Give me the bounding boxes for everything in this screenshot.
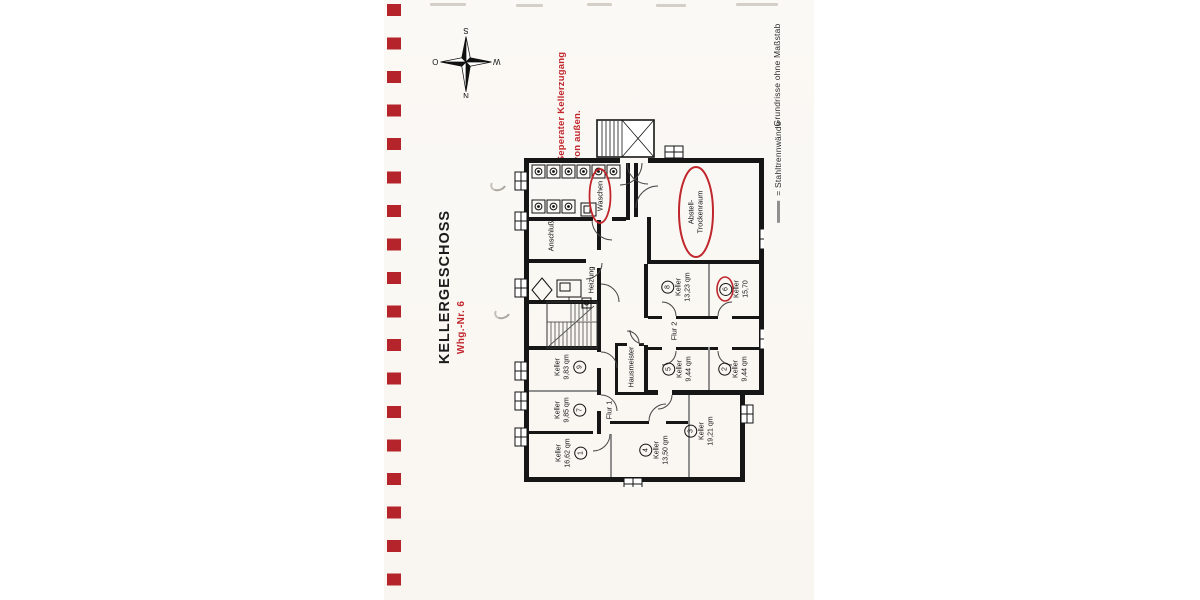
- legend-no-scale: Grundrisse ohne Maßstab: [772, 24, 782, 127]
- cellar-number-8: 8: [661, 281, 674, 294]
- compass-rose: N O S W: [430, 26, 502, 98]
- scan-smudge: [492, 303, 512, 321]
- compass-n-label: N: [463, 91, 469, 98]
- room-label-anschluss: Anschluß: [546, 221, 555, 251]
- compass-o-label: O: [432, 57, 438, 66]
- apartment-number: Whg.-Nr. 6: [456, 210, 467, 354]
- scan-artifact: [516, 4, 543, 7]
- legend-steel-walls-text: = Stahltrennwände: [773, 121, 783, 196]
- room-label-flur2: Flur 2: [669, 322, 678, 341]
- cellar-number-4: 4: [639, 444, 652, 457]
- legend-steel-walls: = Stahltrennwände: [773, 121, 783, 223]
- cellar-number-9: 9: [573, 361, 586, 374]
- room-label-heizung: Heizung: [586, 267, 595, 294]
- cellar-label-3: Keller19,21 qm3: [684, 416, 716, 445]
- room-label-abstellraum: Abstell- Trockenraum: [687, 191, 706, 234]
- cellar-label-4: Keller13,50 qm4: [639, 435, 671, 464]
- scanned-floorplan-page: { "sheet": { "title": "KELLERGESCHOSS", …: [0, 0, 1200, 600]
- cellar-number-7: 7: [573, 404, 586, 417]
- scan-artifact: [430, 3, 466, 6]
- abstell-line-1: Abstell-: [687, 191, 696, 234]
- cellar-number-6: 6: [719, 283, 732, 296]
- steel-wall-line-icon: [777, 201, 780, 223]
- exterior-stair: [597, 120, 654, 157]
- cellar-label-7: Keller9,85 qm7: [554, 397, 586, 422]
- washing-machine-icons: [532, 165, 620, 216]
- scan-artifact: [736, 3, 778, 6]
- spiral-binding-marks: [387, 4, 401, 596]
- cellar-label-5: Keller9,44 qm5: [662, 356, 694, 381]
- compass-star-icon: N O S W: [430, 26, 502, 98]
- cellar-label-6: Keller15,706: [719, 280, 751, 298]
- floor-plan-drawing: [512, 118, 764, 487]
- room-label-waschen: Waschen: [595, 181, 604, 211]
- cellar-number-1: 1: [574, 447, 587, 460]
- cellar-number-2: 2: [718, 363, 731, 376]
- scan-artifact: [587, 3, 612, 6]
- compass-s-label: S: [463, 26, 468, 35]
- scan-smudge: [488, 175, 508, 193]
- floor-plan: Waschen Abstell- Trockenraum Anschluß He…: [524, 150, 764, 487]
- cellar-label-9: Keller9,83 qm9: [554, 354, 586, 379]
- page-title-block: KELLERGESCHOSS Whg.-Nr. 6: [437, 210, 467, 364]
- cellar-label-1: Keller16,62 qm1: [555, 438, 587, 467]
- cellar-number-3: 3: [684, 425, 697, 438]
- scan-artifact: [656, 4, 686, 7]
- abstell-line-2: Trockenraum: [696, 191, 705, 234]
- room-label-hausmeister: Hausmeister: [626, 347, 635, 388]
- cellar-label-2: Keller9,44 qm2: [718, 356, 750, 381]
- compass-w-label: W: [492, 57, 500, 66]
- page-title: KELLERGESCHOSS: [437, 210, 453, 364]
- room-label-flur1: Flur 1: [604, 401, 613, 420]
- scanned-sheet: N O S W KELLERGESCHOSS Whg.-Nr. 6 Sepera…: [384, 0, 814, 600]
- cellar-number-5: 5: [662, 363, 675, 376]
- cellar-label-8: Keller13,23 qm8: [661, 272, 693, 301]
- interior-stair: [547, 302, 597, 348]
